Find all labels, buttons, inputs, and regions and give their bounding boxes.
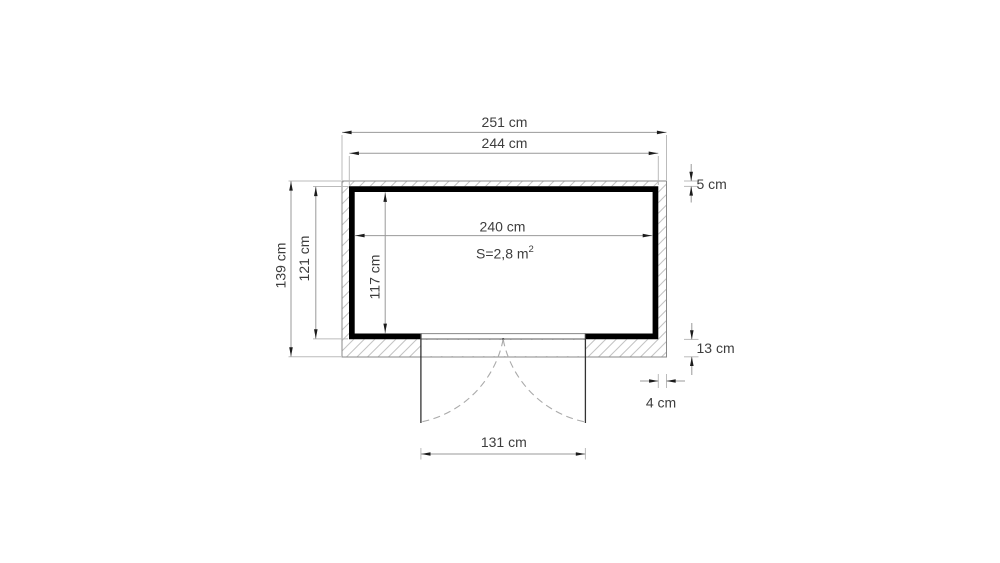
svg-text:244 cm: 244 cm <box>482 135 528 151</box>
svg-text:139 cm: 139 cm <box>273 243 289 289</box>
svg-text:251 cm: 251 cm <box>482 114 528 130</box>
svg-text:117 cm: 117 cm <box>366 255 382 300</box>
svg-text:121 cm: 121 cm <box>296 236 312 282</box>
svg-text:240 cm: 240 cm <box>480 218 526 234</box>
svg-text:4 cm: 4 cm <box>646 395 676 411</box>
svg-text:13 cm: 13 cm <box>697 340 735 356</box>
svg-text:S=2,8 m2: S=2,8 m2 <box>476 244 534 261</box>
svg-text:131 cm: 131 cm <box>481 434 527 450</box>
svg-text:5 cm: 5 cm <box>697 176 727 192</box>
